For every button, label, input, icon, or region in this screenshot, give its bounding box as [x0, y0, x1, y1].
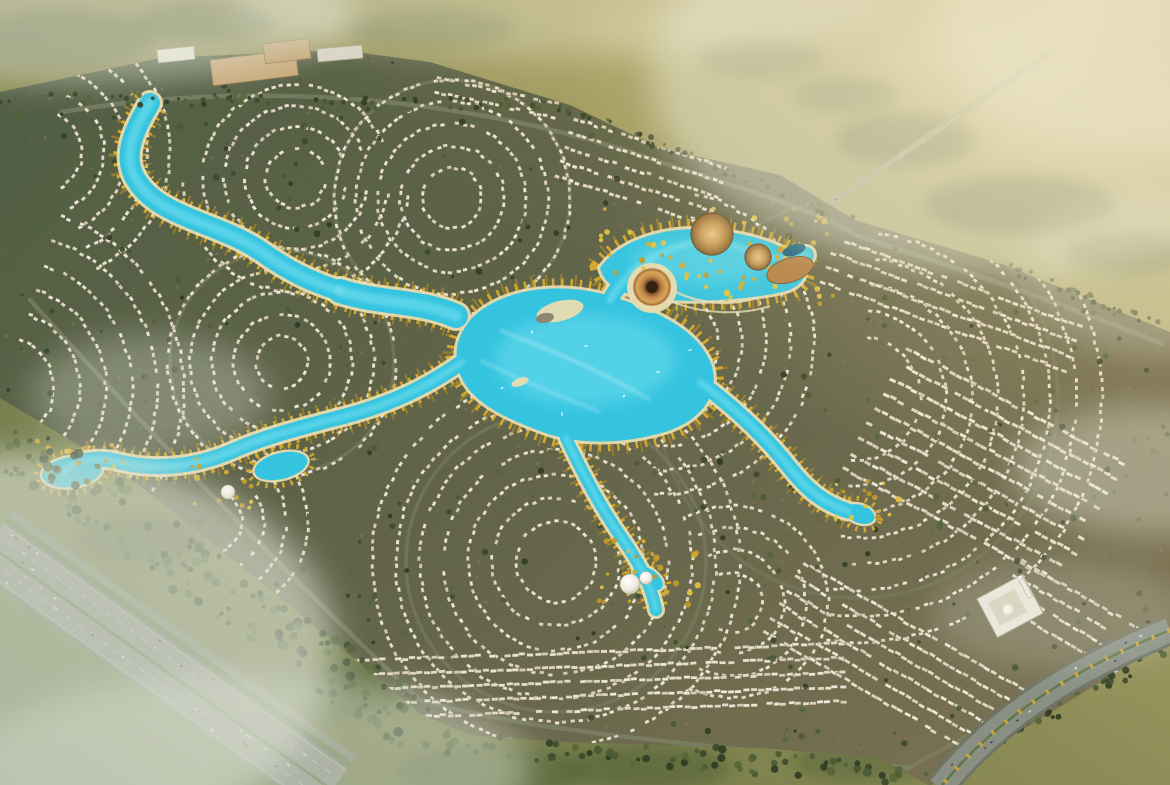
screenshot-root	[0, 0, 1170, 785]
color-grade	[0, 0, 1170, 785]
aerial-development-render	[0, 0, 1170, 785]
